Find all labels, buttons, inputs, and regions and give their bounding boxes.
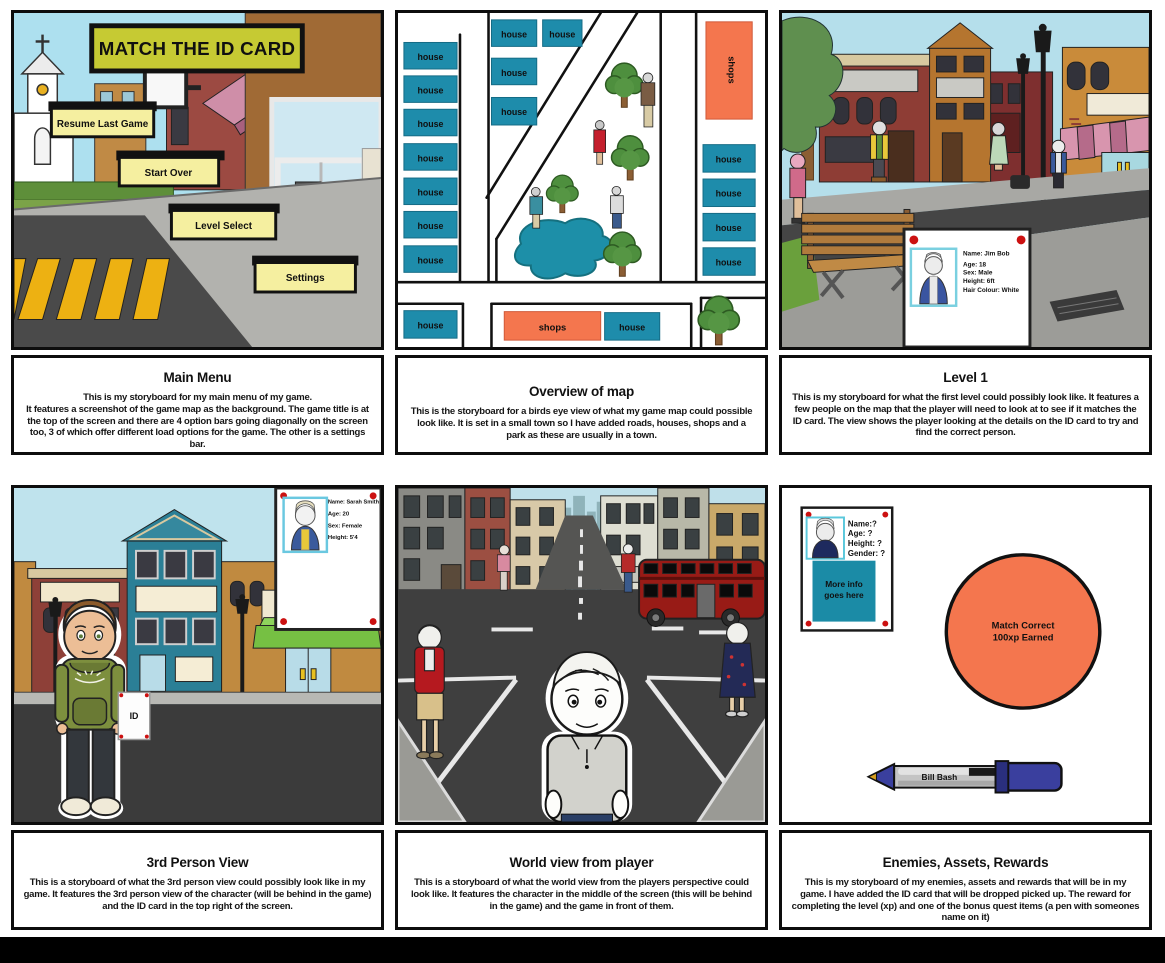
trash-bin-icon [1010,175,1030,189]
house-box: house [417,153,443,163]
caption-body: This is the storyboard for a birds eye v… [407,406,756,441]
id-age: Age: 18 [963,261,987,268]
pen: Bill Bash [869,761,1062,792]
game-title-banner: MATCH THE ID CARD [92,26,303,71]
caption-body: This is my storyboard of my enemies, ass… [791,877,1140,924]
caption-title: World view from player [407,855,756,870]
level-select-button-label: Level Select [195,221,253,232]
caption-rewards: Enemies, Assets, Rewards This is my stor… [779,830,1152,930]
house-box: house [417,320,443,330]
house-box: house [716,154,742,164]
bottom-bar [0,937,1165,963]
level-select-button[interactable]: Level Select [168,204,279,239]
house-box: house [417,188,443,198]
id-hair: Hair Colour: White [963,287,1019,294]
id-tag[interactable]: ID [118,692,149,739]
house-box: house [417,52,443,62]
caption-body: This is my storyboard for my main menu o… [23,392,372,451]
house-column-left: house house house house house house hous… [404,42,457,272]
more-info-line2: goes here [824,590,864,600]
caption-title: Main Menu [23,370,372,385]
bottom-row: house shops house [404,311,660,340]
pin-dot [280,618,287,625]
id-sex: Sex: Female [328,523,363,529]
caption-map-overview: Overview of map This is the storyboard f… [395,355,768,455]
id-name: Name: Sarah Smith [328,500,380,506]
house-box: house [417,119,443,129]
id-tag-label: ID [130,711,139,721]
house-box: house [716,223,742,233]
id-age: Age: 20 [328,512,350,518]
caption-body: This is a storyboard of what the 3rd per… [23,877,372,912]
start-over-button[interactable]: Start Over [116,151,224,186]
bell-icon [37,84,48,95]
id-height: Height: 6ft [963,278,995,285]
caption-main-menu: Main Menu This is my storyboard for my m… [11,355,384,455]
caption-level-1: Level 1 This is my storyboard for what t… [779,355,1152,455]
start-over-button-label: Start Over [145,168,193,179]
id-card[interactable]: Name: Jim Bob Age: 18 Sex: Male Height: … [904,229,1030,347]
house-box: house [716,189,742,199]
pen-label: Bill Bash [922,772,958,782]
pin-dot [882,621,888,627]
pin-dot [909,236,918,245]
resume-button-label: Resume Last Game [57,119,149,130]
shops-label: shops [727,56,737,83]
pin-dot [806,621,812,627]
scene-level-1[interactable]: Name: Jim Bob Age: 18 Sex: Male Height: … [779,10,1152,350]
scene-main-menu[interactable]: MATCH THE ID CARD Resume Last Game Start… [11,10,384,350]
house-box: house [501,30,527,40]
id-sex: Sex: Male [963,269,993,276]
game-title: MATCH THE ID CARD [99,38,296,59]
player-character [542,652,633,822]
id-name: Name: Jim Bob [963,251,1010,258]
scene-map-overview[interactable]: house house house house house house hous… [395,10,768,350]
reward-circle: Match Correct 100xp Earned [946,555,1099,708]
id-card[interactable]: Name: Sarah Smith Age: 20 Sex: Female He… [276,488,381,629]
house-box: house [549,30,575,40]
building-b [928,23,993,182]
caption-3rd-person: 3rd Person View This is a storyboard of … [11,830,384,930]
caption-body: This is a storyboard of what the world v… [407,877,756,912]
id-height: Height: 5'4 [328,535,359,541]
resume-button[interactable]: Resume Last Game [48,101,156,136]
double-decker-bus [639,560,765,627]
shops-box-vertical: shops [706,22,752,119]
id-name: Name:? [848,519,877,528]
scene-3rd-person[interactable]: ID Name: Sarah Smith Age: 20 Sex: Female… [11,485,384,825]
id-height: Height: ? [848,539,882,548]
shops-label: shops [539,322,567,332]
house-box: house [619,322,645,332]
id-card[interactable]: Name:? Age: ? Height: ? Gender: ? More i… [802,508,893,631]
reward-text-line2: 100xp Earned [993,632,1054,642]
reward-text-line1: Match Correct [992,620,1055,630]
pin-dot [370,618,377,625]
more-info-line1: More info [825,579,863,589]
building-teal [122,510,226,692]
caption-title: Overview of map [407,384,756,399]
house-box: house [417,86,443,96]
pin-dot [1017,236,1026,245]
house-box: house [417,256,443,266]
caption-body: This is my storyboard for what the first… [791,392,1140,439]
caption-title: Enemies, Assets, Rewards [791,855,1140,870]
building-shop [1060,47,1149,187]
id-gender: Gender: ? [848,549,885,558]
scene-world-view[interactable] [395,485,768,825]
scene-rewards[interactable]: Name:? Age: ? Height: ? Gender: ? More i… [779,485,1152,825]
house-box: house [501,68,527,78]
caption-title: Level 1 [791,370,1140,385]
player-character [55,600,126,819]
house-box: house [417,221,443,231]
pin-dot [370,492,377,499]
house-box: house [501,107,527,117]
house-box: house [716,257,742,267]
settings-button[interactable]: Settings [252,256,358,292]
settings-button-label: Settings [286,273,325,284]
pin-dot [882,512,888,518]
caption-title: 3rd Person View [23,855,372,870]
caption-world-view: World view from player This is a storybo… [395,830,768,930]
id-age: Age: ? [848,529,873,538]
